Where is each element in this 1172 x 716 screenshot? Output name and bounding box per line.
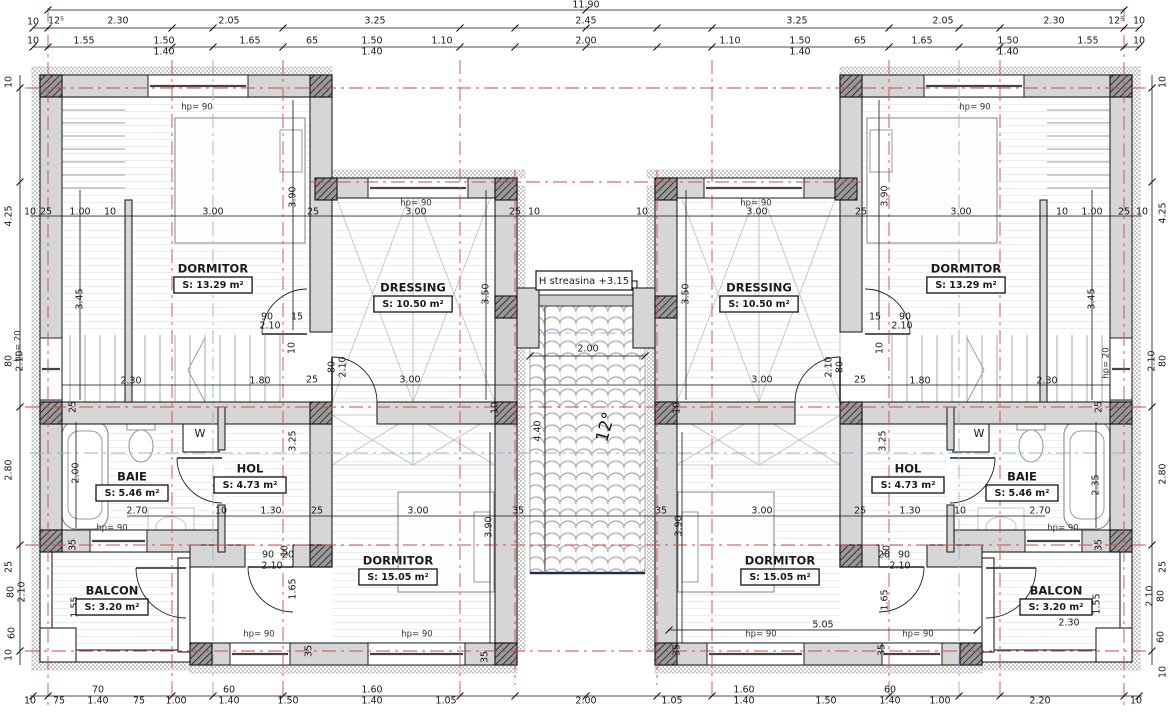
insulation-band (655, 665, 982, 673)
dimension-label: 10 (24, 696, 36, 707)
room-label: BAIE (117, 470, 147, 484)
dimension-label: 65 (306, 36, 318, 47)
dimension-label: 1.05 (661, 696, 682, 707)
dimension-label: 2.05 (218, 16, 239, 27)
dimension-label: 2.70 (1029, 506, 1050, 517)
wall (633, 288, 655, 348)
wall (1110, 75, 1132, 535)
dimension-label: 1.00 (165, 696, 186, 707)
dimension-label: 2.30 (107, 16, 128, 27)
dimension-label: 2.30 (1058, 618, 1079, 629)
structural-pier (310, 75, 332, 97)
structural-pier (310, 545, 332, 567)
dimension-label: 1.40 (361, 696, 382, 707)
dimension-label: 1.40 (361, 47, 382, 58)
dimension-label: 2.30 (1036, 376, 1057, 387)
wall (862, 402, 1132, 424)
dimension-label: 2.10 (891, 321, 912, 332)
dimension-label: 1.50 (153, 36, 174, 47)
dimension-label: 2.80 (1158, 463, 1169, 484)
room-area-label: S: 4.73 m² (223, 480, 278, 491)
dimension-label: 25 (854, 506, 866, 517)
dimension-label: 10 (1056, 207, 1068, 218)
wall (218, 407, 225, 450)
window-height-tag: hp= 90 (740, 199, 771, 209)
wall (125, 200, 132, 402)
dimension-label: 70 (92, 685, 104, 696)
dimension-label: 25 (854, 375, 866, 386)
room-label: DORMITOR (745, 554, 816, 568)
balcony-parapet (982, 558, 994, 652)
structural-pier (495, 296, 517, 318)
room-area-label: S: 15.05 m² (749, 572, 810, 583)
wall (1040, 200, 1047, 402)
dimension-label: 3.90 (880, 185, 891, 206)
dimension-label: 12⁵ (1108, 16, 1124, 27)
dimension-label: 10 (672, 402, 683, 414)
room-label: BALCON (86, 584, 139, 598)
window-height-tag: hp= 90 (401, 630, 432, 640)
toilet-bowl (1019, 430, 1043, 462)
dimension-label: 80 (327, 361, 338, 373)
structural-pier (835, 178, 857, 200)
dimension-label: 10 (528, 207, 540, 218)
dimension-label: 35 (480, 651, 491, 663)
dimension-label: 10 (27, 36, 39, 47)
dimension-label: 35 (655, 506, 667, 517)
dimension-label: 1.60 (361, 685, 382, 696)
dimension-label: 1.55 (1077, 36, 1098, 47)
dimension-label: 25 (1094, 401, 1105, 413)
dimension-label: 1.50 (815, 696, 836, 707)
dimension-label: 1.40 (218, 696, 239, 707)
wall (947, 407, 954, 450)
dimension-label: 25 (311, 506, 323, 517)
insulation-band (32, 662, 190, 670)
room-area-label: S: 3.20 m² (1029, 602, 1084, 613)
dimension-label: 3.90 (288, 186, 299, 207)
room-area-label: S: 13.29 m² (182, 280, 243, 291)
dimension-label: 2.35 (1091, 474, 1102, 495)
insulation-band (840, 67, 1140, 75)
dimension-label: 10 (636, 207, 648, 218)
room-area-label: S: 5.46 m² (995, 488, 1050, 499)
window-height-tag: hp= 20 (14, 330, 24, 361)
room-label: BALCON (1030, 584, 1083, 598)
balcony-parapet (1096, 628, 1132, 662)
window-height-tag: hp= 90 (181, 103, 212, 113)
dimension-label: 25 (1158, 561, 1169, 573)
dimension-label: 1.50 (277, 696, 298, 707)
dimension-label: 1.50 (997, 36, 1018, 47)
dimension-label: 11.90 (572, 0, 599, 11)
window-height-tag: hp= 90 (400, 199, 431, 209)
dimension-label: 1.65 (288, 578, 299, 599)
dimension-label: 60 (1156, 631, 1167, 643)
toilet-bowl (129, 430, 153, 462)
structural-pier (655, 296, 677, 318)
dimension-label: 80 (835, 361, 846, 373)
dimension-label: 3.50 (681, 283, 692, 304)
dimension-label: 1.30 (260, 506, 281, 517)
window-height-tag: hp= 90 (96, 524, 127, 534)
room-label: DRESSING (380, 281, 446, 295)
structural-pier (840, 402, 862, 424)
structural-pier (495, 643, 517, 665)
balcony-parapet (178, 558, 190, 652)
window-height-tag: hp= 90 (959, 103, 990, 113)
dimension-label: W (974, 427, 985, 440)
dimension-label: 10 (875, 342, 886, 354)
room-label: HOL (237, 462, 264, 476)
insulation-band (647, 170, 840, 178)
dimension-label: 90 (898, 550, 910, 561)
dimension-label: W (195, 427, 206, 440)
insulation-band (982, 662, 1140, 670)
dimension-label: 3.25 (786, 16, 807, 27)
dimension-label: 3.50 (481, 283, 492, 304)
structural-pier (495, 178, 517, 200)
dimension-label: 2.10 (338, 356, 349, 377)
room-area-label: S: 15.05 m² (367, 572, 428, 583)
dimension-label: 25 (1118, 207, 1130, 218)
dimension-label: 10 (1133, 16, 1145, 27)
dimension-label: 10 (1158, 666, 1169, 678)
insulation-band (1132, 67, 1140, 542)
dimension-label: 1.10 (431, 36, 452, 47)
structural-pier (840, 75, 862, 97)
structural-pier (840, 545, 862, 567)
dimension-label: 2.00 (575, 36, 596, 47)
insulation-band (190, 665, 517, 673)
dimension-label: 4.25 (1158, 202, 1169, 223)
dimension-label: 1.30 (899, 506, 920, 517)
door-swing-arc (248, 567, 293, 612)
dimension-label: 10 (104, 207, 116, 218)
window-height-tag: hp= 90 (902, 630, 933, 640)
dimension-label: 2.05 (932, 16, 953, 27)
window-height-tag: hp= 90 (243, 630, 274, 640)
insulation-band (332, 170, 525, 178)
dimension-label: 2.70 (126, 506, 147, 517)
dimension-label: 1.00 (929, 696, 950, 707)
dimension-label: 1.55 (1092, 593, 1103, 614)
structural-pier (40, 530, 62, 552)
dimension-label: 2.10 (261, 561, 282, 572)
dimension-label: 1.10 (719, 36, 740, 47)
roof-eave-bar (526, 295, 650, 306)
dimension-label: 3.25 (878, 430, 889, 451)
dimension-label: 10 (490, 402, 501, 414)
room-area-label: S: 10.50 m² (382, 299, 443, 310)
dimension-label: 25 (68, 401, 79, 413)
dimension-label: 2.00 (575, 696, 596, 707)
structural-pier (1110, 530, 1132, 552)
dimension-label: 1.65 (239, 36, 260, 47)
wall (40, 402, 310, 424)
dimension-label: 25 (40, 207, 52, 218)
dimension-label: 3.00 (399, 375, 420, 386)
dimension-label: 80 (1158, 355, 1169, 367)
dimension-label: 35 (672, 644, 683, 656)
dimension-label: 5.05 (812, 620, 833, 631)
dimension-label: 4.40 (533, 420, 544, 441)
structural-pier (960, 643, 982, 665)
dimension-label: 75 (133, 696, 145, 707)
floor-plan-page: 11.901012⁵2.302.053.252.453.252.052.3012… (0, 0, 1172, 716)
dimension-label: 10 (27, 17, 39, 28)
dimension-label: 3.45 (75, 288, 86, 309)
eaves-note-label: H streasina +3.15 (539, 276, 629, 287)
dimension-label: 15 (291, 312, 303, 323)
room-label: HOL (895, 462, 922, 476)
dimension-label: 60 (223, 685, 235, 696)
dimension-label: 2.30 (120, 376, 141, 387)
dimension-label: 35 (1094, 539, 1105, 551)
dimension-label: 10 (4, 649, 15, 661)
dimension-label: 1.00 (1081, 207, 1102, 218)
dimension-label: 4.25 (4, 205, 15, 226)
structural-pier (655, 178, 677, 200)
dimension-label: 35 (512, 506, 524, 517)
room-area-label: S: 5.46 m² (105, 488, 160, 499)
dimension-label: 80 (6, 586, 17, 598)
dimension-label: 2.10 (259, 321, 280, 332)
room-label: DORMITOR (931, 262, 1002, 276)
dimension-label: 3.25 (288, 430, 299, 451)
insulation-band (32, 67, 332, 75)
structural-pier (190, 643, 212, 665)
balcony-parapet (40, 628, 76, 662)
dimension-label: 10 (954, 506, 966, 517)
stair-direction-arrow (188, 338, 205, 402)
dimension-label: 3.00 (751, 375, 772, 386)
dimension-label: 20 (282, 550, 294, 561)
dimension-label: 65 (854, 36, 866, 47)
dimension-label: 10 (1136, 207, 1148, 218)
floor-plan-canvas: 11.901012⁵2.302.053.252.453.252.052.3012… (0, 0, 1172, 716)
dimension-label: 1.50 (361, 36, 382, 47)
dimension-label: 1.40 (997, 47, 1018, 58)
dimension-label: 2.30 (1043, 16, 1064, 27)
dimension-label: 80 (1156, 590, 1167, 602)
dimension-label: 2.10 (1147, 350, 1158, 371)
dimension-label: 1.50 (789, 36, 810, 47)
structural-pier (1110, 75, 1132, 97)
structural-pier (40, 75, 62, 97)
dimension-label: 25 (4, 561, 15, 573)
insulation-band (647, 186, 655, 651)
dimension-label: 3.00 (407, 506, 428, 517)
dimension-label: 1.65 (911, 36, 932, 47)
dimension-label: 60 (884, 685, 896, 696)
dimension-label: 10 (1130, 696, 1142, 707)
dimension-label: 12⁵ (48, 16, 64, 27)
dimension-label: 35 (304, 645, 315, 657)
room-area-label: S: 10.50 m² (728, 299, 789, 310)
dimension-label: 1.05 (435, 696, 456, 707)
window-height-tag: hp= 90 (1047, 524, 1078, 534)
room-label: DORMITOR (178, 262, 249, 276)
window-height-tag: hp= 90 (745, 630, 776, 640)
stair-direction-arrow (967, 338, 984, 402)
dimension-label: 15 (869, 312, 881, 323)
dimension-label: 90 (262, 550, 274, 561)
structural-pier (310, 402, 332, 424)
room-label: BAIE (1007, 470, 1037, 484)
room-area-label: S: 4.73 m² (881, 480, 936, 491)
dimension-label: 1.40 (733, 696, 754, 707)
dimension-label: 1.60 (733, 685, 754, 696)
dimension-label: 10 (4, 76, 15, 88)
dimension-label: 35 (877, 644, 888, 656)
wall (40, 75, 62, 535)
dimension-label: 2.00 (577, 344, 598, 355)
dimension-label: 2.10 (824, 356, 835, 377)
room-label: DRESSING (726, 281, 792, 295)
insulation-band (32, 67, 40, 542)
structural-pier (40, 402, 62, 424)
dimension-label: 10 (287, 342, 298, 354)
room-area-label: S: 3.20 m² (85, 602, 140, 613)
window-height-tag: hp= 20 (1102, 347, 1112, 378)
dimension-label: 2.45 (575, 16, 596, 27)
dimension-label: 3.25 (364, 16, 385, 27)
dimension-label: 3.00 (751, 506, 772, 517)
dimension-label: 1.40 (789, 47, 810, 58)
wall (517, 288, 539, 348)
dimension-label: 3.00 (202, 207, 223, 218)
dimension-label: 3.90 (674, 515, 685, 536)
dimension-label: 10 (1133, 36, 1145, 47)
dimension-label: 1.80 (909, 376, 930, 387)
dimension-label: 3.90 (484, 516, 495, 537)
dimension-label: 10 (1158, 76, 1169, 88)
dimension-label: 10 (215, 506, 227, 517)
dimension-label: 2.10 (889, 561, 910, 572)
dimension-label: 25 (509, 207, 521, 218)
dimension-label: 1.40 (87, 696, 108, 707)
dimension-label: 1.00 (69, 207, 90, 218)
structural-pier (1110, 402, 1132, 424)
dimension-label: 1.40 (153, 47, 174, 58)
dimension-label: 25 (306, 375, 318, 386)
dimension-label: 35 (68, 539, 79, 551)
structural-pier (315, 178, 337, 200)
dimension-label: 1.40 (879, 696, 900, 707)
dimension-label: 10 (24, 207, 36, 218)
dimension-label: 25 (855, 207, 867, 218)
room-area-label: S: 13.29 m² (935, 280, 996, 291)
dimension-label: 75 (53, 696, 65, 707)
dimension-label: 25 (307, 207, 319, 218)
dimension-label: 2.10 (17, 581, 28, 602)
dimension-label: 2.80 (4, 459, 15, 480)
dimension-label: 2.20 (1029, 696, 1050, 707)
insulation-band (517, 186, 525, 651)
dimension-label: 1.80 (249, 376, 270, 387)
dimension-label: 60 (7, 627, 18, 639)
dimension-label: 3.00 (950, 207, 971, 218)
dimension-label: 2.00 (71, 462, 82, 483)
dimension-label: 1.55 (73, 36, 94, 47)
dimension-label: 20 (878, 550, 890, 561)
dimension-label: 1.65 (880, 589, 891, 610)
dimension-label: 2.10 (1145, 585, 1156, 606)
room-label: DORMITOR (363, 554, 434, 568)
dimension-label: 3.45 (1087, 288, 1098, 309)
